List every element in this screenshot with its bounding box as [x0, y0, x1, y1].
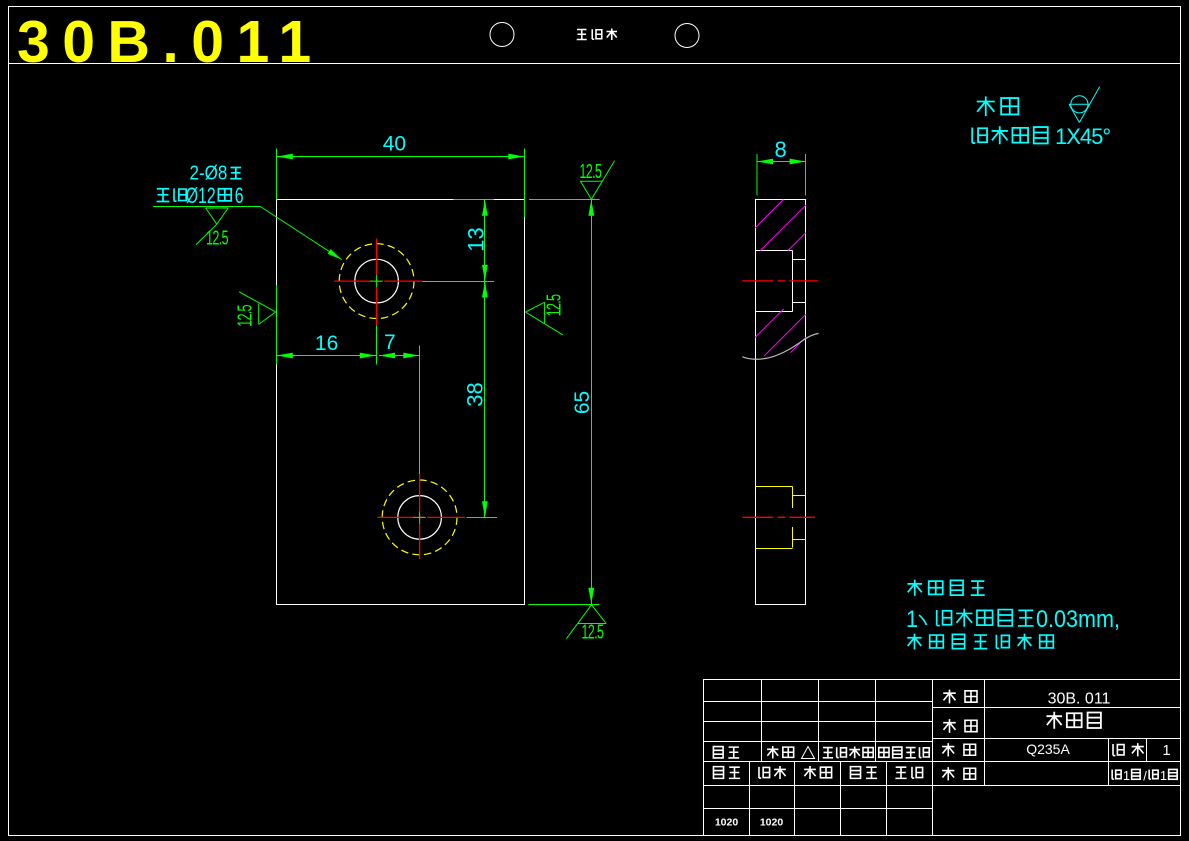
svg-text:1020: 1020	[760, 817, 784, 829]
svg-text:16: 16	[315, 332, 338, 355]
svg-text:Ø12: Ø12	[186, 184, 216, 208]
svg-text:12.5: 12.5	[579, 160, 601, 183]
svg-text:2-Ø8: 2-Ø8	[190, 161, 228, 184]
svg-text:12.5: 12.5	[581, 620, 603, 643]
svg-text:12.5: 12.5	[206, 227, 228, 250]
svg-text:30B. 011: 30B. 011	[1048, 691, 1111, 708]
svg-text:1X45°: 1X45°	[1055, 124, 1110, 149]
svg-text:30B.011: 30B.011	[17, 9, 324, 75]
svg-text:6: 6	[235, 184, 244, 208]
svg-text:40: 40	[383, 133, 406, 156]
svg-text:7: 7	[384, 331, 396, 354]
svg-text:8: 8	[774, 137, 786, 162]
svg-text:38: 38	[463, 382, 488, 406]
svg-text:1: 1	[1123, 768, 1130, 783]
svg-text:1: 1	[1160, 768, 1167, 783]
svg-text:Q235A: Q235A	[1026, 741, 1070, 757]
svg-text:/: /	[1143, 769, 1147, 784]
svg-text:1: 1	[906, 605, 918, 632]
svg-text:13: 13	[464, 227, 489, 251]
svg-text:12.5: 12.5	[542, 294, 565, 316]
svg-text:65: 65	[571, 391, 594, 414]
svg-text:12.5: 12.5	[233, 305, 256, 327]
svg-text:0.03mm,: 0.03mm,	[1036, 605, 1120, 632]
svg-text:1020: 1020	[715, 817, 739, 829]
svg-text:1: 1	[1162, 743, 1170, 759]
